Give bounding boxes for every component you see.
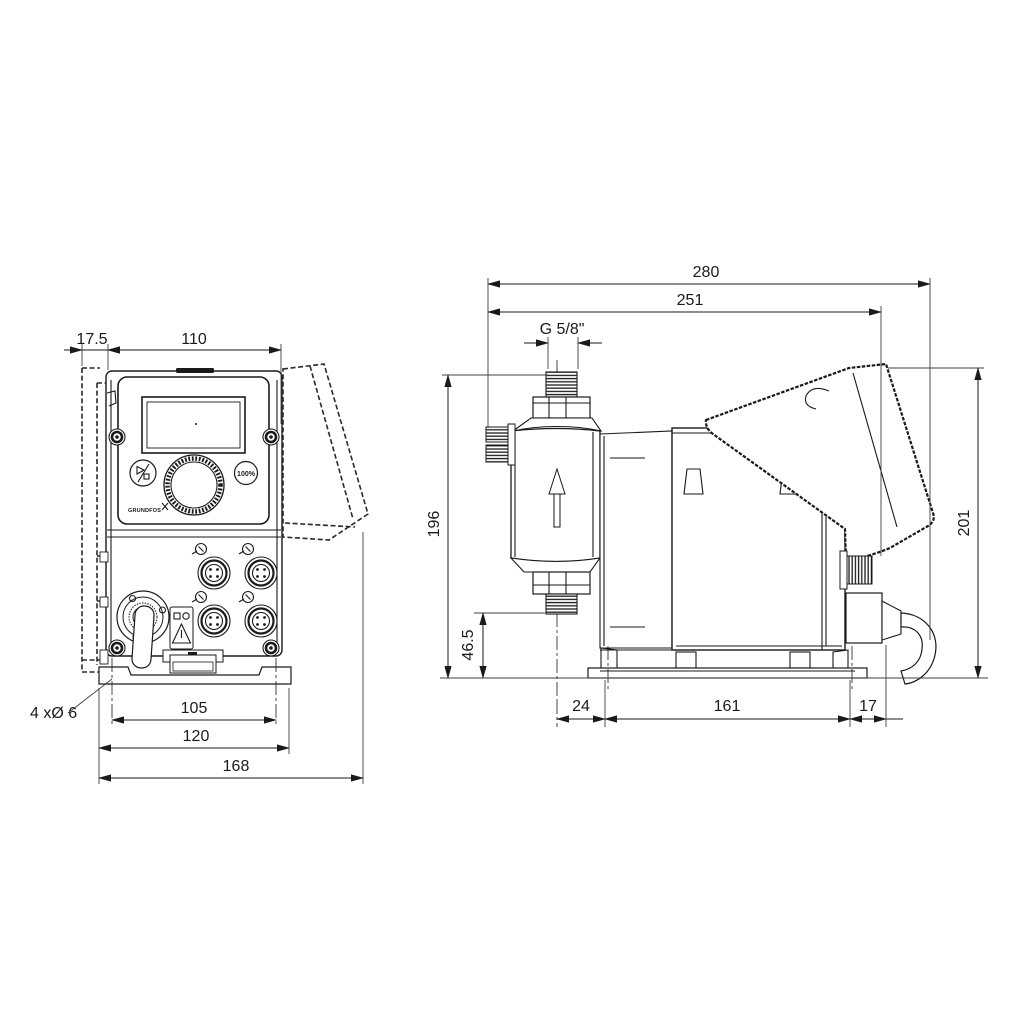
dosing-head: [486, 372, 601, 614]
mounting-plate-phantom: [82, 368, 107, 672]
dosing-pump-drawing: 100% GRUNDFOS: [0, 0, 1024, 1024]
dim-head-offset-label: 24: [572, 698, 590, 715]
technical-drawing-page: 100% GRUNDFOS: [0, 0, 1024, 1024]
dim-hole-spacing-label: 105: [181, 700, 208, 717]
click-wheel-dial[interactable]: [164, 455, 224, 515]
mounting-rail-clip: [163, 650, 223, 673]
hundred-percent-label: 100%: [237, 471, 256, 478]
dim-gland-offset-label: 17: [859, 698, 877, 715]
dim-overall-width-label: 168: [223, 758, 250, 775]
dim-height-outlet-label: 46.5: [460, 629, 477, 660]
dim-height-inlet-label: 196: [426, 511, 443, 538]
top-tab: [176, 368, 214, 373]
display-screen: [142, 397, 245, 453]
dim-holes-label: 4 xØ 6: [30, 705, 77, 722]
dim-thread-label: G 5/8": [540, 321, 585, 338]
dim-overall-depth-label: 280: [693, 264, 720, 281]
m12-connector[interactable]: [245, 557, 277, 589]
outlet-thread: [546, 594, 577, 614]
cable-gland-front: [117, 591, 169, 669]
m12-connector[interactable]: [198, 557, 230, 589]
tilted-panel-phantom: [283, 364, 368, 540]
warning-label: [170, 607, 193, 649]
dim-depth-to-gland-label: 251: [677, 292, 704, 309]
rear-thread-stub: [846, 556, 872, 584]
vent-valve-knob[interactable]: [486, 424, 515, 465]
cable-gland-side: [846, 593, 882, 643]
dim-overall-height-label: 201: [956, 510, 973, 537]
dim-base-depth-label: 161: [714, 698, 741, 715]
svg-text:GRUNDFOS: GRUNDFOS: [128, 508, 161, 514]
inlet-thread: [546, 372, 577, 397]
dim-width-top-label: 110: [181, 331, 207, 348]
front-view: 100% GRUNDFOS: [30, 331, 368, 784]
power-cable-side: [901, 613, 936, 684]
m12-connector[interactable]: [198, 605, 230, 637]
hundred-percent-button[interactable]: 100%: [235, 462, 258, 485]
control-panel: 100% GRUNDFOS: [107, 377, 281, 537]
dim-base-width-label: 120: [183, 728, 210, 745]
dim-offset-label: 17.5: [76, 331, 107, 348]
rear-connections: [840, 551, 936, 684]
start-stop-button[interactable]: [130, 460, 156, 486]
side-view: 280 251 G 5/8" 196 46.5 201 24: [426, 264, 988, 727]
m12-connector[interactable]: [245, 605, 277, 637]
power-cable-front: [131, 605, 154, 668]
